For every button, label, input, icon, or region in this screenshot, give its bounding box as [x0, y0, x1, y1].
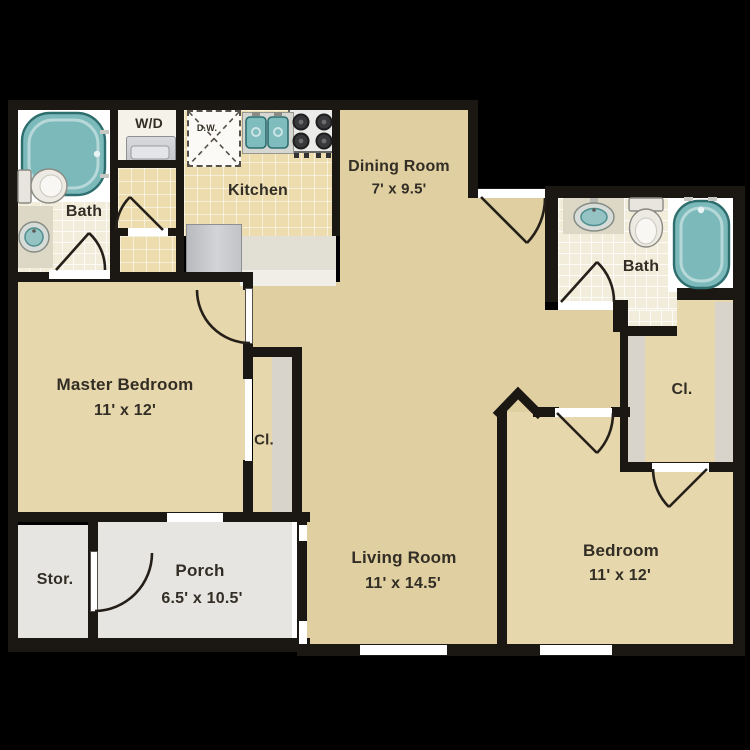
- label-dining-room: Dining Room: [348, 158, 450, 176]
- label-bath-right: Bath: [623, 258, 659, 276]
- master-bedroom-floor: [18, 282, 246, 512]
- sink-right-counter: [563, 198, 624, 234]
- hall-floor-bedroom: [497, 310, 620, 414]
- kitchen-sink-base: [242, 112, 294, 154]
- hall-floor-upper: [340, 310, 497, 347]
- dishwasher-box: [187, 110, 241, 167]
- window-living-room: [360, 645, 447, 655]
- closet-right-shelf-right: [715, 302, 733, 462]
- laundry-hall-floor: [118, 168, 176, 230]
- wall-master-door-stub-bottom: [243, 343, 253, 379]
- wall-closet-left-right: [292, 347, 302, 522]
- label-bedroom: Bedroom: [583, 541, 659, 561]
- porch-floor: [98, 522, 297, 641]
- wall-top: [8, 100, 478, 110]
- label-dishwasher: D.W.: [197, 123, 217, 133]
- stove-box: [288, 108, 336, 153]
- wall-closet-right-left: [620, 326, 628, 472]
- wall-bath-notch-bottom: [620, 326, 677, 336]
- label-porch: Porch: [175, 561, 224, 581]
- living-room-floor: [302, 345, 497, 647]
- label-kitchen: Kitchen: [228, 182, 288, 200]
- hall-floor-master: [253, 282, 340, 347]
- threshold-pantry: [128, 228, 168, 236]
- wall-right: [733, 186, 745, 656]
- label-master-bedroom: Master Bedroom: [57, 375, 194, 395]
- wall-living-bedroom: [497, 410, 507, 656]
- dims-living-room: 11' x 14.5': [365, 575, 441, 593]
- closet-left-shelf: [272, 357, 292, 512]
- wall-laundry-bottom: [118, 160, 184, 168]
- label-closet-right: Cl.: [671, 381, 692, 399]
- dims-bedroom: 11' x 12': [589, 567, 651, 585]
- pantry-floor: [120, 236, 176, 274]
- wall-left: [8, 100, 18, 652]
- dims-dining-room: 7' x 9.5': [372, 181, 427, 198]
- sink-left-counter: [17, 206, 53, 268]
- wall-dining-bath: [545, 186, 558, 302]
- threshold-bedroom: [555, 408, 612, 417]
- wall-kitchen-dining: [332, 100, 340, 236]
- wall-master-bottom: [8, 512, 310, 522]
- dining-living-floor: [340, 198, 545, 312]
- label-closet-left: Cl.: [254, 432, 274, 449]
- label-bath-left: Bath: [66, 203, 102, 221]
- door-leaf-storage: [90, 551, 98, 612]
- dims-master-bedroom: 11' x 12': [94, 402, 156, 420]
- kitchen-counter: [240, 236, 336, 286]
- threshold-closet-right: [652, 463, 709, 472]
- threshold-entry-door: [478, 189, 545, 198]
- door-closet-left: [245, 379, 252, 461]
- tub-right-alcove: [668, 196, 733, 292]
- wall-bottom-left: [8, 638, 310, 652]
- wall-pantry-left: [112, 230, 120, 276]
- label-living-room: Living Room: [351, 548, 456, 568]
- label-storage: Stor.: [37, 571, 74, 589]
- wall-master-top: [8, 272, 253, 282]
- wall-entry-notch: [468, 100, 478, 192]
- closet-right-shelf-left: [628, 336, 645, 462]
- window-porch-top: [299, 525, 307, 541]
- threshold-bath-right: [558, 301, 613, 310]
- dims-porch: 6.5' x 10.5': [161, 590, 242, 608]
- refrigerator: [186, 224, 242, 274]
- door-leaf-master: [245, 288, 253, 344]
- tub-left-alcove: [18, 108, 110, 202]
- wall-kitchen-left: [176, 100, 184, 276]
- window-master-porch: [167, 513, 223, 522]
- wall-bath-right-top: [545, 186, 745, 198]
- label-washer-dryer: W/D: [135, 115, 163, 131]
- wall-tub-bottom: [677, 288, 735, 300]
- floor-plan: Master Bedroom 11' x 12' Living Room 11'…: [0, 0, 750, 750]
- window-porch-bottom: [299, 621, 307, 644]
- window-bedroom: [540, 645, 612, 655]
- threshold-bath-left: [49, 270, 110, 279]
